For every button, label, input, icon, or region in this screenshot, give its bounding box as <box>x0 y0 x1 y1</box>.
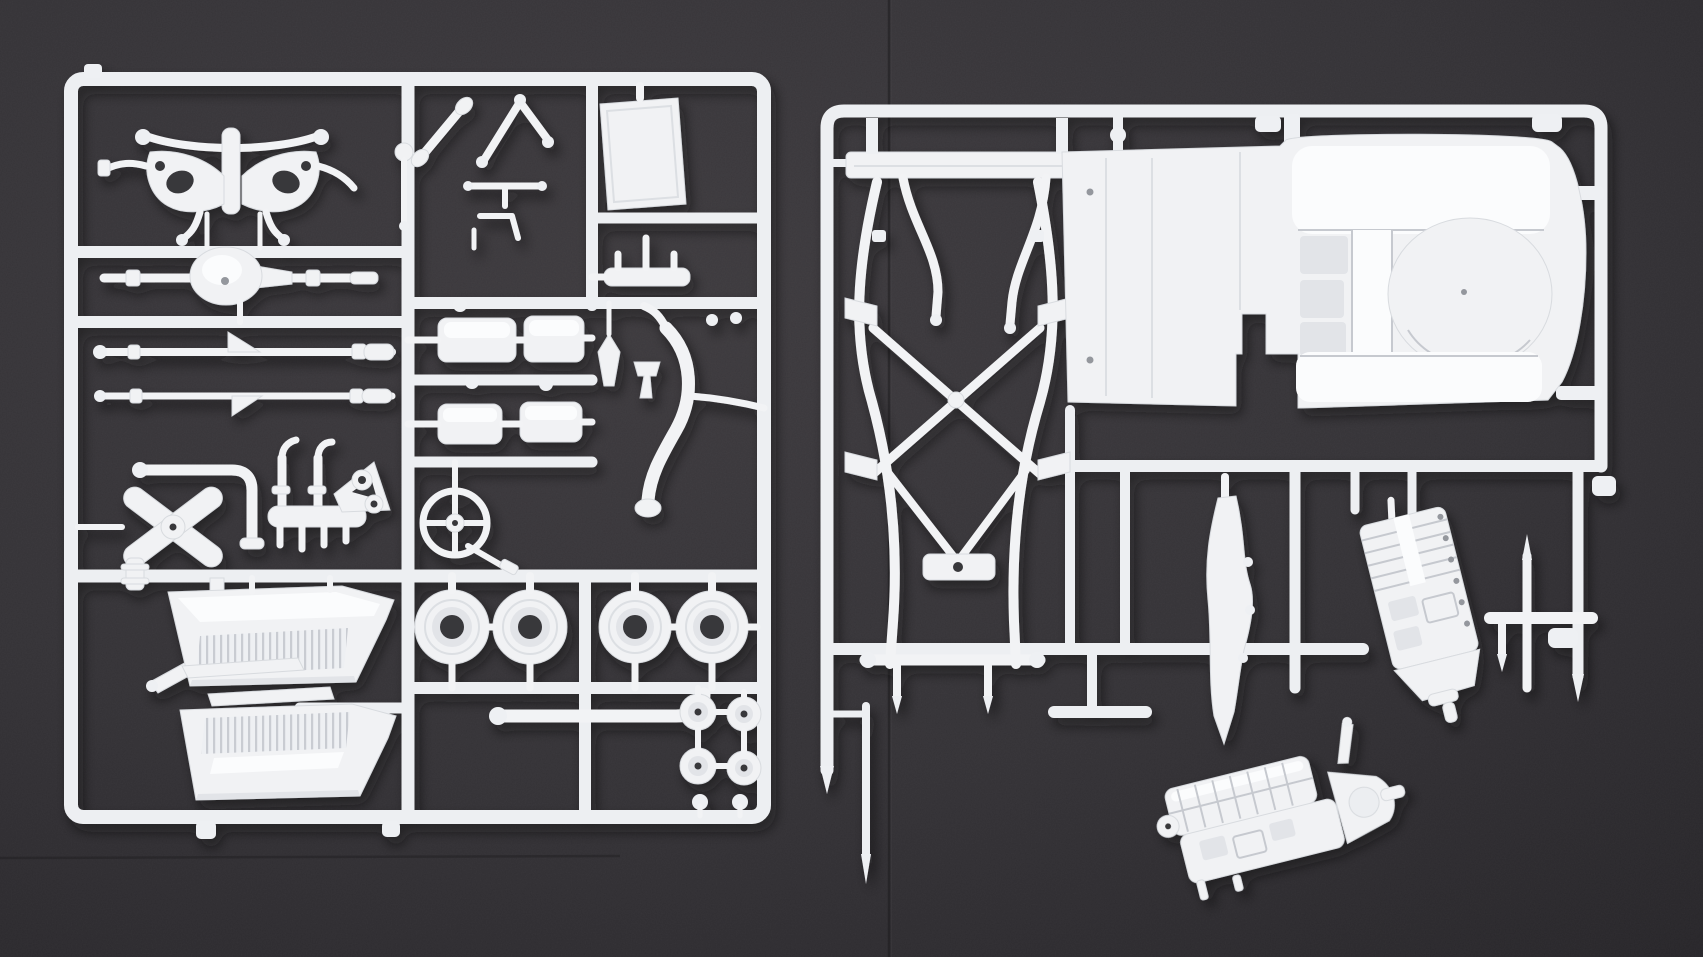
seat-bench-hump <box>1292 146 1550 234</box>
bracket-tab <box>1548 628 1578 648</box>
frame-tab-top <box>84 64 102 78</box>
rail-foot <box>1592 476 1616 496</box>
bar-stub-1 <box>866 118 878 154</box>
strip-bump-3 <box>1238 653 1248 663</box>
frame-tab-bottom-2 <box>382 821 400 837</box>
end-2 <box>514 94 526 106</box>
detail <box>440 615 464 639</box>
bench-seat-rear <box>180 704 396 800</box>
knob-a <box>706 314 718 326</box>
detail <box>1300 280 1344 318</box>
seat-rib-band <box>201 712 350 754</box>
axle-collar-left <box>98 160 110 176</box>
detail <box>1300 236 1348 274</box>
brake-drum-2 <box>493 590 567 664</box>
gate-bump-3 <box>539 377 553 391</box>
hook-knob-right <box>278 234 290 246</box>
ring-hole-2 <box>371 501 378 508</box>
hub-cap-1 <box>680 694 716 730</box>
pan-right-stub-2 <box>1556 386 1602 400</box>
pan-hole-2 <box>1087 357 1094 364</box>
hub-cap-4 <box>727 751 761 785</box>
detail <box>741 765 748 772</box>
detail <box>518 615 542 639</box>
blade-knob <box>146 680 158 692</box>
axle-collar-1 <box>126 270 140 286</box>
hook-knob-left <box>176 234 188 246</box>
strip-bump-2 <box>1245 605 1255 615</box>
rail-tab-a <box>872 230 886 242</box>
cross-bulge-1 <box>860 652 876 668</box>
pipe-flange <box>635 499 661 517</box>
pipe-end <box>132 462 148 478</box>
ring-hole-1 <box>358 476 366 484</box>
end-1 <box>463 181 473 191</box>
box-1-highlight <box>444 322 510 338</box>
collar-body <box>126 558 144 590</box>
collar-flange-2 <box>121 578 149 584</box>
x-hub-hole <box>170 524 177 531</box>
rod-knob <box>94 390 106 402</box>
rod-end <box>930 314 942 326</box>
rod-collar-1 <box>128 345 140 359</box>
strip-bump-1 <box>1243 557 1253 567</box>
rod-collar-1 <box>130 389 142 403</box>
lower-bench <box>1296 352 1542 402</box>
brake-drum-3 <box>599 591 671 663</box>
collar-2 <box>308 486 326 494</box>
rod-paddle <box>364 344 394 360</box>
photo-of-model-kit-sprues <box>0 0 1703 957</box>
pipe-cap <box>489 707 507 725</box>
foot <box>399 221 409 231</box>
sill-steps <box>1300 236 1348 356</box>
brake-drum-4 <box>676 591 748 663</box>
knob-b <box>730 312 742 324</box>
pipe-flange <box>240 538 264 549</box>
box-4-highlight <box>525 406 577 420</box>
detail <box>741 711 748 718</box>
floor-pan <box>1062 114 1604 408</box>
rod-knob <box>93 345 107 359</box>
axle-end-flat <box>350 272 378 284</box>
brake-drum-1 <box>415 590 489 664</box>
hub-cap-2 <box>727 697 761 731</box>
box-2-highlight <box>529 320 579 336</box>
rail-tab-1 <box>1255 116 1281 132</box>
rail-tab-b <box>1030 230 1044 242</box>
kingpin <box>222 128 240 214</box>
frame-tab-bottom-1 <box>196 821 216 839</box>
detail <box>1300 322 1346 356</box>
cross-bulge-2 <box>1029 652 1045 668</box>
spare-tire-well-dome <box>1388 218 1552 370</box>
hub-cap-3 <box>680 748 716 784</box>
rail-tab-2 <box>1532 114 1562 132</box>
pan-hole-1 <box>1087 189 1094 196</box>
box-3-highlight <box>443 408 497 422</box>
wing-hole-right-2 <box>301 161 311 171</box>
collar-1 <box>272 486 290 494</box>
cargo-floor-panel <box>600 86 686 210</box>
rod-collar-2 <box>350 389 363 403</box>
end-1 <box>476 156 488 168</box>
axle-collar-2 <box>306 270 320 286</box>
plate-hole <box>953 562 963 572</box>
bar-stub-2 <box>1056 118 1068 154</box>
rod-paddle <box>362 389 392 403</box>
wing-hole-left-2 <box>155 161 165 171</box>
x-center-boss <box>948 392 964 408</box>
detail <box>695 709 702 716</box>
gate-bump-1 <box>453 298 467 312</box>
detail <box>695 763 702 770</box>
scene-canvas <box>0 0 1703 957</box>
collar-flange-1 <box>121 564 149 570</box>
dome-center-hole <box>1461 289 1467 295</box>
hub-hole <box>452 520 458 526</box>
rod-end <box>1004 322 1016 334</box>
end-3 <box>542 136 554 148</box>
gate-bump-2 <box>465 375 479 389</box>
end-2 <box>537 181 547 191</box>
axle-knob-left <box>135 129 151 145</box>
detail <box>700 615 724 639</box>
gate-bump-top <box>1110 127 1126 143</box>
diff-hub-dot <box>221 277 229 285</box>
axle-knob-right <box>313 129 329 145</box>
detail <box>623 615 647 639</box>
